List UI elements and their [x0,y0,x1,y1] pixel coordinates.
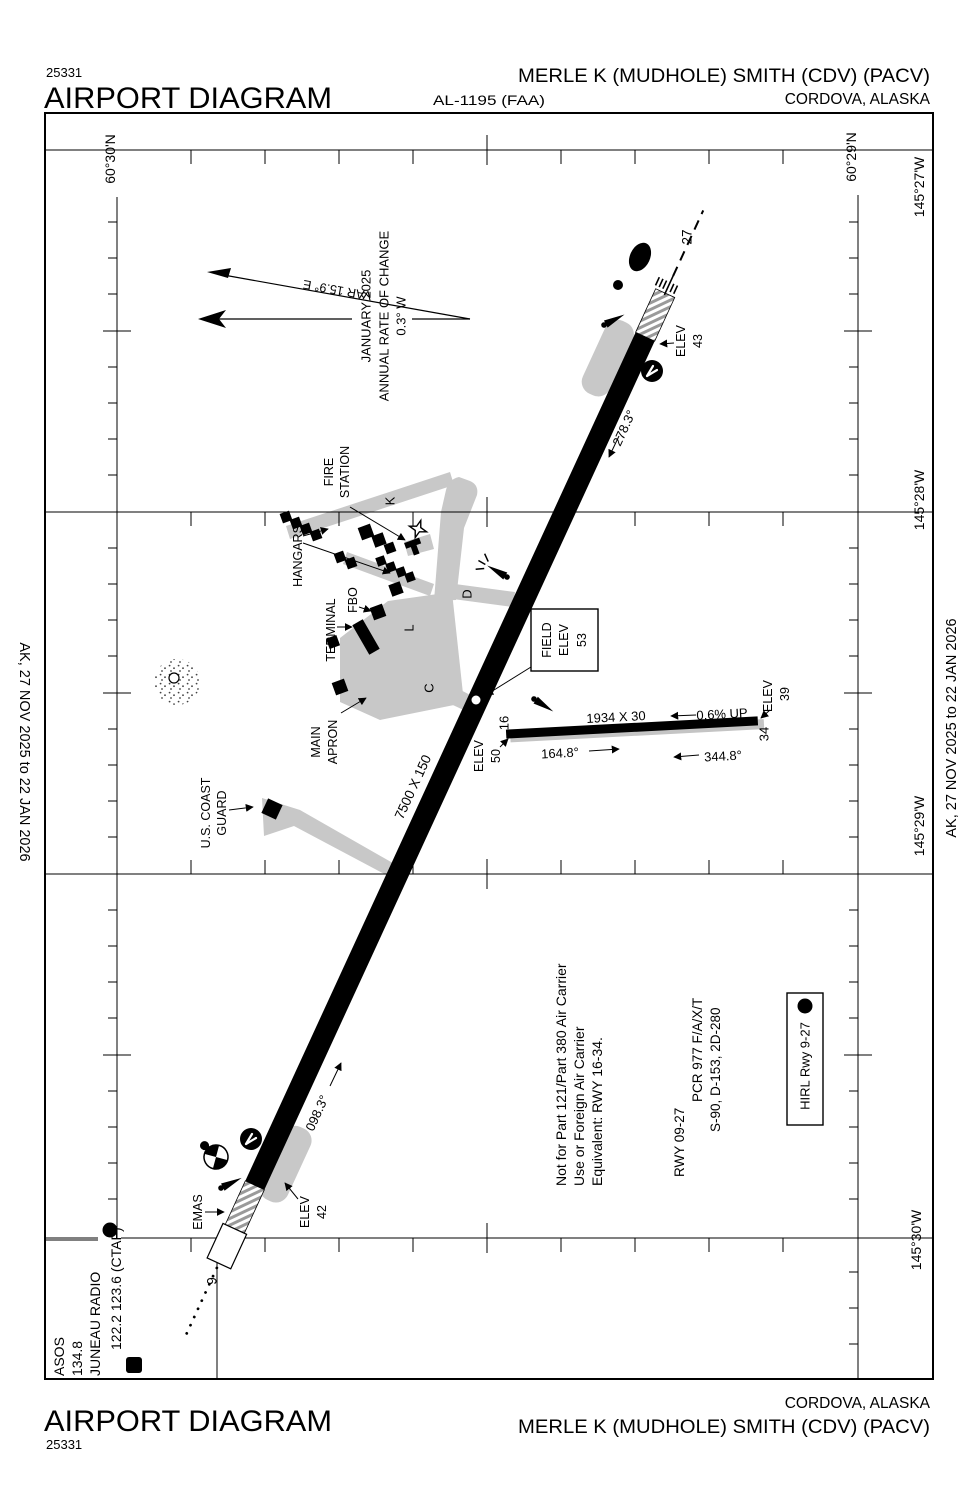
runway-9-heading: 098.3° [302,1093,331,1134]
page-title-top: AIRPORT DIAGRAM [44,82,332,115]
pcn-note-1: RWY 09-27 [672,1108,687,1177]
circled-arrow-icon [240,1128,262,1150]
carrier-note-1: Not for Part 121/Part 380 Air Carrier [553,963,569,1186]
rwy27-chevron-area [636,289,675,341]
runway-34-heading: 344.8° [704,748,742,765]
lon-label-29w: 145°29'W [911,795,927,856]
lighted-windsock-icon [474,553,514,586]
runway-16-34-size: 1934 X 30 [586,708,646,726]
lat-label-60-30: 60°30'N [102,134,118,184]
carrier-note-2: Use or Foreign Air Carrier [571,1026,587,1186]
comm-d-symbol: D [128,1361,140,1369]
emas-label-group: EMAS [191,1194,224,1229]
lon-label-27w: 145°27'W [911,156,927,217]
runway-9-heading-arrow [330,1063,341,1086]
al-number: AL-1195 (FAA) [433,92,545,108]
lat-label-60-29: 60°29'N [843,132,859,182]
windsock-icon [217,1174,244,1193]
city-top: CORDOVA, ALASKA [785,91,931,108]
airport-name-bottom: MERLE K (MUDHOLE) SMITH (CDV) (PACV) [518,1417,930,1438]
airport-name-top: MERLE K (MUDHOLE) SMITH (CDV) (PACV) [518,66,930,87]
elev-label: ELEV [674,324,688,357]
ctaf-l-symbol: L [104,1226,116,1233]
hirl-box: HIRL Rwy 9-27 L [787,993,823,1125]
hirl-label: HIRL Rwy 9-27 [798,1022,813,1110]
carrier-note: Not for Part 121/Part 380 Air Carrier Us… [553,963,605,1186]
longitude-lines [45,150,933,874]
asos-label: ASOS [51,1337,67,1376]
runway-34-heading-arrow [674,755,699,757]
elev-leader [500,739,508,747]
chart-id-top: 25331 [46,65,82,80]
latitude-lines [117,195,858,1379]
field-elev-line2: ELEV [557,623,571,656]
city-bottom: CORDOVA, ALASKA [785,1395,931,1412]
annual-rate-value: 0.3° W [394,296,409,336]
taxiway-a5-label: A5 [633,249,647,264]
runway-16-34-slope: 0.6% UP [696,705,748,723]
runway-9-number: 9 [205,1277,220,1285]
variation-date: JANUARY 2025 [359,270,374,363]
elev-value: 43 [691,334,705,348]
field-elev-value: 53 [575,633,589,647]
circled-arrow-icon [641,360,663,382]
uscg-label-2: GUARD [215,790,229,835]
effective-dates-left: AK, 27 NOV 2025 to 22 JAN 2026 [16,642,32,861]
taxiway-a-pavement [434,477,477,601]
windsock-icon [529,694,555,715]
elev-label: ELEV [298,1195,312,1228]
uscg-taxiway [262,798,398,878]
elev-value: 42 [315,1205,329,1219]
carrier-note-3: Equivalent: RWY 16-34. [589,1037,605,1186]
field-elev-point [472,696,481,705]
header: 25331 AIRPORT DIAGRAM AL-1195 (FAA) MERL… [44,65,931,115]
asos-frequency: 134.8 [69,1341,85,1376]
fbo-leader [359,607,371,611]
runway-16-number: 16 [497,716,512,730]
page-title-bottom: AIRPORT DIAGRAM [44,1405,332,1438]
rwy9-extended-centerline-dots [185,1266,219,1335]
taxiway-dot-icon [613,280,623,290]
runway-27-number: 27 [680,229,695,244]
fire-station-label-2: STATION [338,446,352,498]
rwy34-elevation: ELEV 39 [761,679,792,718]
comm-box: ASOS 134.8 JUNEAU RADIO 122.2 123.6 (CTA… [51,1223,142,1377]
chart-id-bottom: 25331 [46,1437,82,1452]
emas-label: EMAS [191,1194,205,1229]
slope-arrow [671,715,696,716]
elev-value: 50 [489,749,503,763]
elev-value: 39 [778,687,792,701]
uscg-label-1: U.S. COAST [199,777,213,848]
rwy9-elevation: ELEV 42 [285,1183,329,1228]
fbo-label: FBO [346,587,360,613]
taxiway-k-label: K [383,496,398,505]
rwy9-chevron-area [225,1181,264,1233]
taxiway-d-label: D [460,589,475,598]
elev-label: ELEV [472,739,486,772]
runway-16-heading: 164.8° [541,745,579,762]
pcn-note: RWY 09-27 PCR 977 F/A/X/T S-90, D-153, 2… [672,998,723,1177]
map-border [45,113,933,1379]
fire-station-label-1: FIRE [322,458,336,486]
magnetic-north-arrowhead-icon [207,268,231,278]
main-apron-label-2: APRON [326,720,340,764]
taxiway-c-label: C [422,683,437,692]
footer: AIRPORT DIAGRAM 25331 CORDOVA, ALASKA ME… [44,1395,931,1452]
effective-dates-right: AK, 27 NOV 2025 to 22 JAN 2026 [944,618,960,837]
rotating-beacon-icon [195,1140,231,1172]
hirl-light-symbol: L [799,1002,811,1009]
field-elev-line1: FIELD [540,622,554,657]
pcn-note-3: S-90, D-153, 2D-280 [708,1007,723,1132]
terminal-label: TERMINAL [324,598,338,661]
annual-rate-label: ANNUAL RATE OF CHANGE [377,230,392,401]
airport-diagram-page: 25331 AIRPORT DIAGRAM AL-1195 (FAA) MERL… [0,0,978,1500]
juneau-radio-frequencies: 122.2 123.6 (CTAF) [108,1227,124,1350]
stippled-area-icon [154,659,200,705]
rwy27-elevation: ELEV 43 [660,324,705,357]
elev-label: ELEV [761,679,775,712]
rwy16-elevation: ELEV 50 [472,739,508,772]
uscg-leader [229,807,253,810]
runway-16-heading-arrow [589,749,619,751]
runway-34-number: 34 [757,727,772,741]
juneau-radio-label: JUNEAU RADIO [87,1272,103,1376]
lon-label-28w: 145°28'W [911,469,927,530]
elev-leader [660,343,674,344]
pcn-note-2: PCR 977 F/A/X/T [690,998,705,1102]
lon-label-30w: 145°30'W [908,1209,924,1270]
main-apron-label-1: MAIN [309,726,323,757]
taxiway-l-label: L [402,624,417,631]
taxiway-a5-marker: A5 [613,239,655,290]
hangars-label: HANGARS [291,525,305,587]
north-arrows: VAR 15.9° E JANUARY 2025 ANNUAL RATE OF … [198,230,470,401]
